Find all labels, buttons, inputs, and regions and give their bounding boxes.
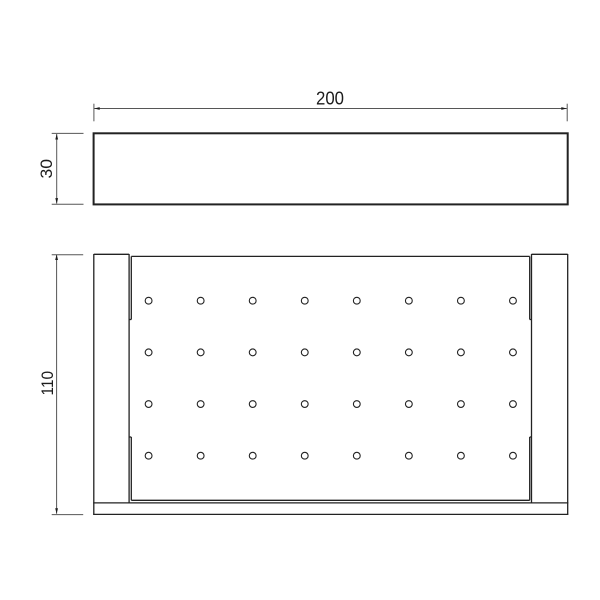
svg-text:30: 30 <box>38 159 56 179</box>
svg-text:110: 110 <box>39 371 57 396</box>
svg-text:200: 200 <box>316 89 344 109</box>
